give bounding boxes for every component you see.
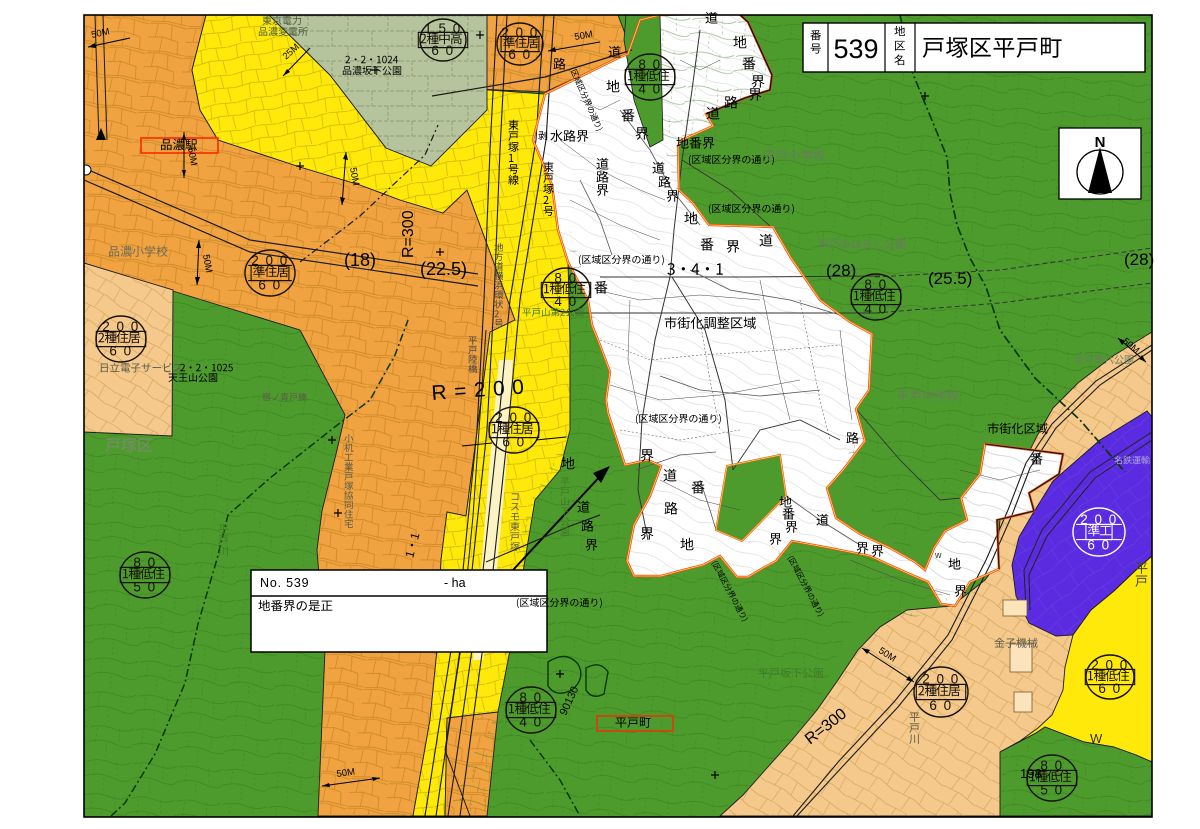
svg-text:6 0: 6 0 (431, 43, 454, 58)
svg-text:8 0: 8 0 (519, 690, 542, 705)
svg-text:4 0: 4 0 (554, 294, 577, 309)
svg-text:2 0 0: 2 0 0 (102, 319, 140, 334)
svg-text:8 0: 8 0 (133, 555, 156, 570)
svg-text:No. 539: No. 539 (260, 576, 309, 590)
svg-text:6 0: 6 0 (258, 278, 281, 293)
svg-text:(22.5): (22.5) (420, 259, 467, 279)
svg-text:(28): (28) (826, 261, 856, 280)
svg-text:539: 539 (833, 34, 878, 64)
svg-text:2 0 0: 2 0 0 (495, 410, 533, 425)
svg-text:- ha: - ha (444, 576, 466, 590)
svg-text:4 0: 4 0 (638, 82, 661, 97)
svg-text:6 0: 6 0 (1087, 537, 1110, 552)
svg-text:2 0 0: 2 0 0 (251, 253, 289, 268)
svg-text:6 0: 6 0 (502, 435, 525, 450)
svg-text:5 0: 5 0 (1040, 783, 1063, 798)
svg-text:(18): (18) (344, 250, 376, 270)
svg-text:4 0: 4 0 (519, 715, 542, 730)
svg-text:6 0: 6 0 (1098, 681, 1121, 696)
svg-text:(28): (28) (1124, 250, 1154, 269)
svg-text:W: W (1090, 731, 1103, 746)
svg-text:6 0: 6 0 (109, 344, 132, 359)
svg-text:8 0: 8 0 (1040, 758, 1063, 773)
svg-text:w: w (934, 550, 942, 560)
svg-text:8 0: 8 0 (864, 277, 887, 292)
svg-text:6 0: 6 0 (508, 47, 531, 62)
svg-text:6 0: 6 0 (929, 698, 952, 713)
svg-text:4 0: 4 0 (864, 302, 887, 317)
svg-text:(25.5): (25.5) (928, 269, 972, 288)
svg-text:5 0: 5 0 (133, 580, 156, 595)
svg-text:R=300: R=300 (400, 210, 417, 258)
svg-text:198: 198 (1020, 766, 1042, 781)
